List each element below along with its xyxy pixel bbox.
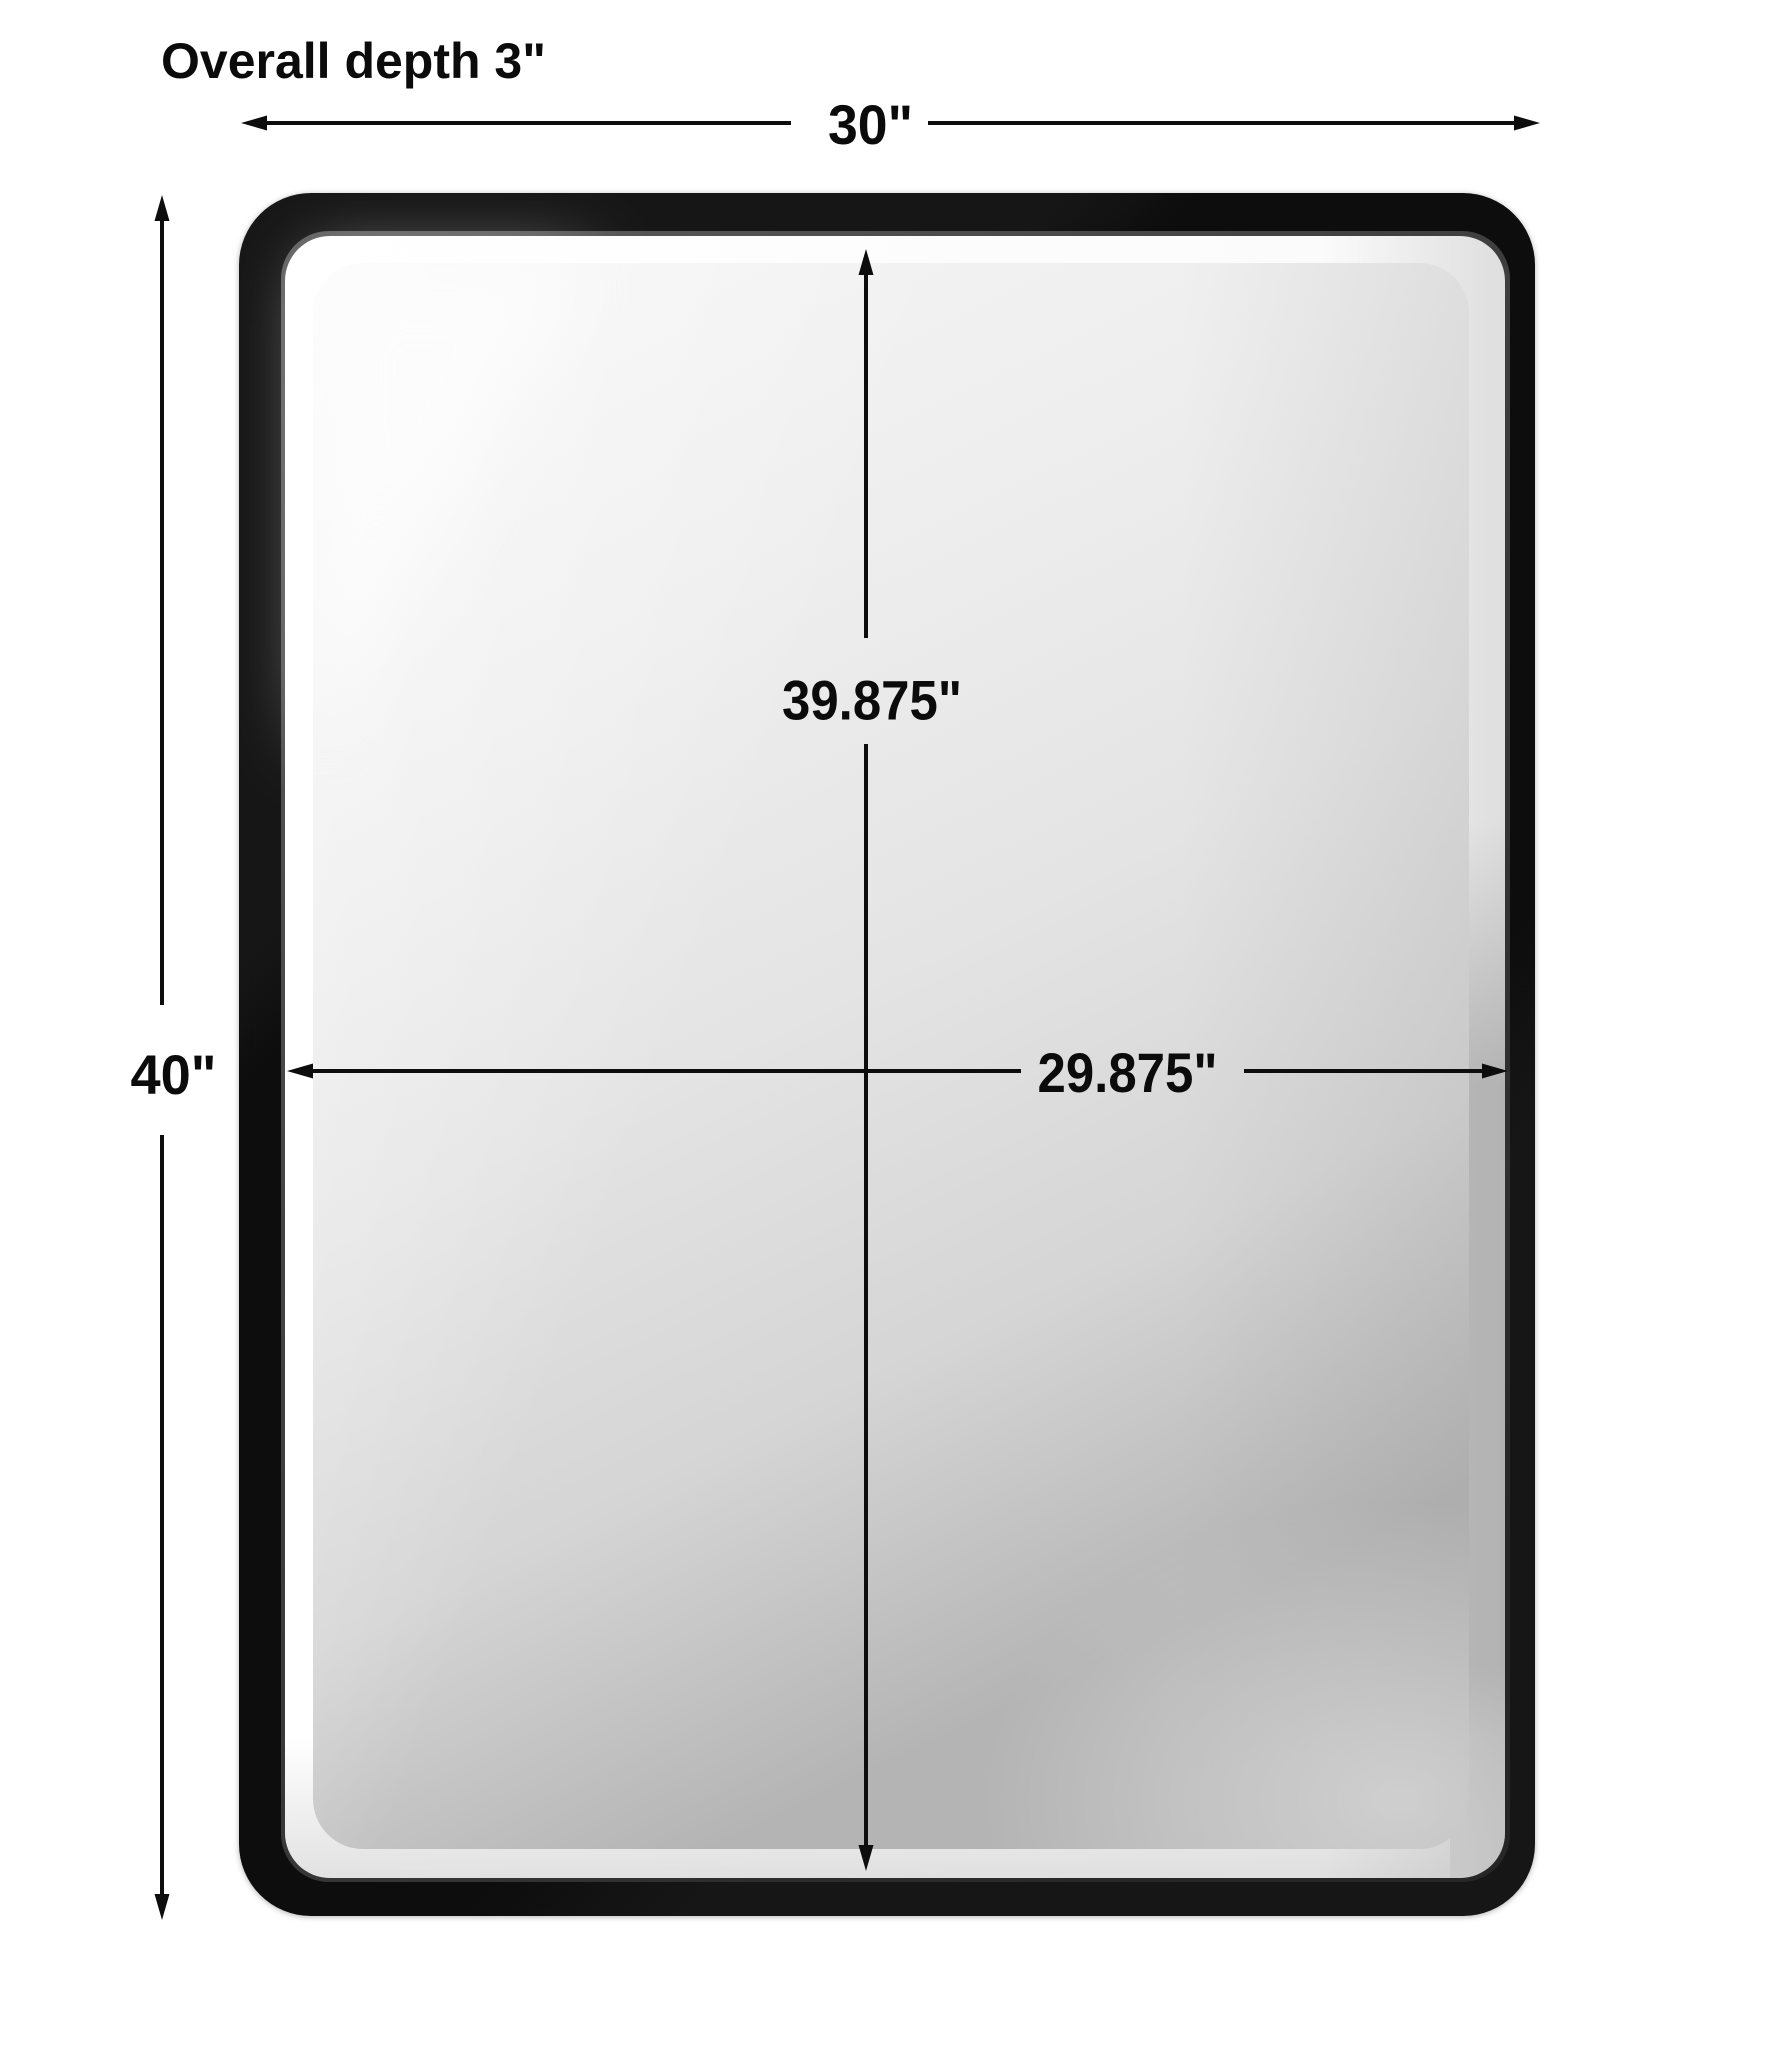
svg-text:40": 40" bbox=[131, 1043, 217, 1106]
svg-text:29.875": 29.875" bbox=[1038, 1041, 1218, 1104]
svg-text:39.875": 39.875" bbox=[782, 669, 962, 732]
svg-text:30": 30" bbox=[828, 93, 913, 156]
svg-text:Overall depth 3": Overall depth 3" bbox=[161, 33, 546, 89]
